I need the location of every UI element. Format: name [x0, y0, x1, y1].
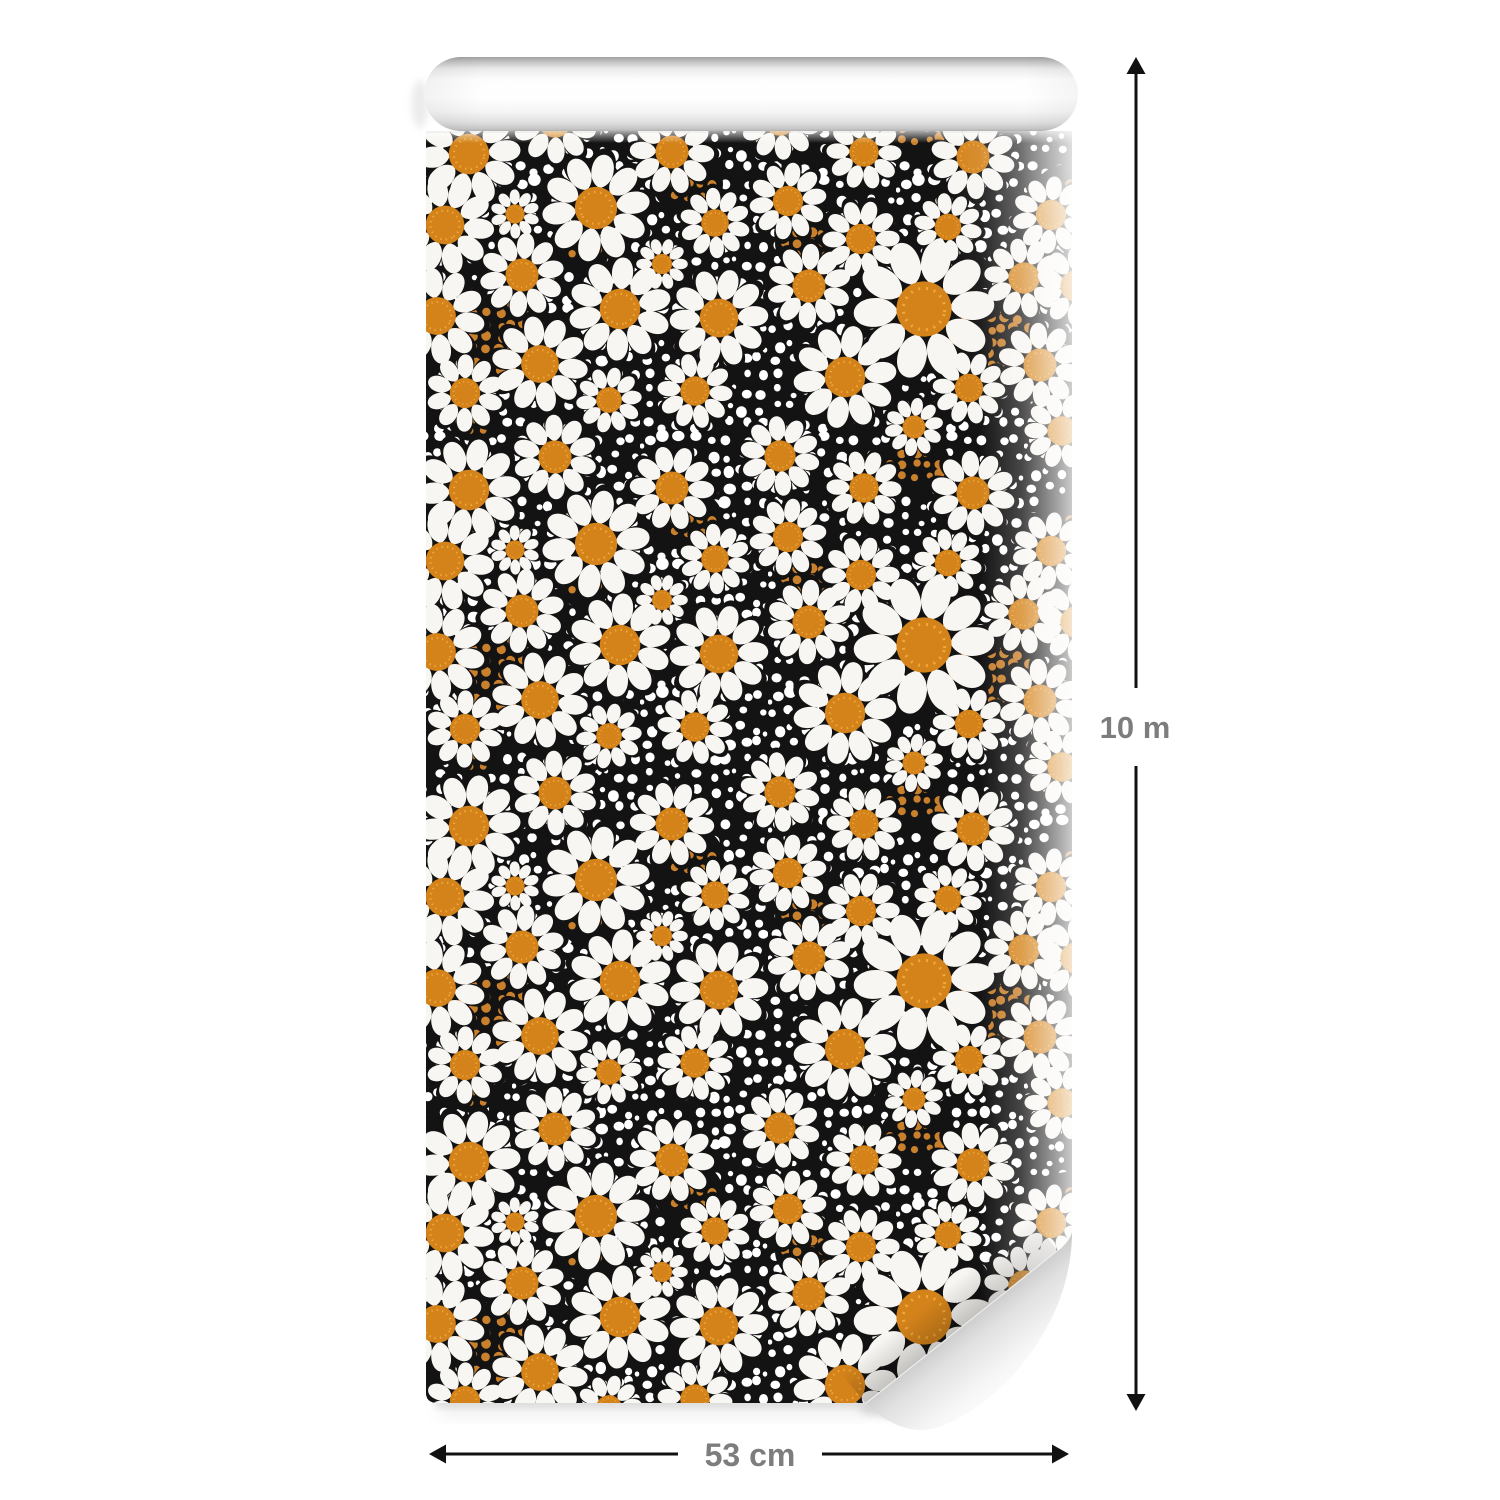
svg-text:53 cm: 53 cm [705, 1437, 796, 1473]
svg-text:10 m: 10 m [1100, 710, 1171, 745]
